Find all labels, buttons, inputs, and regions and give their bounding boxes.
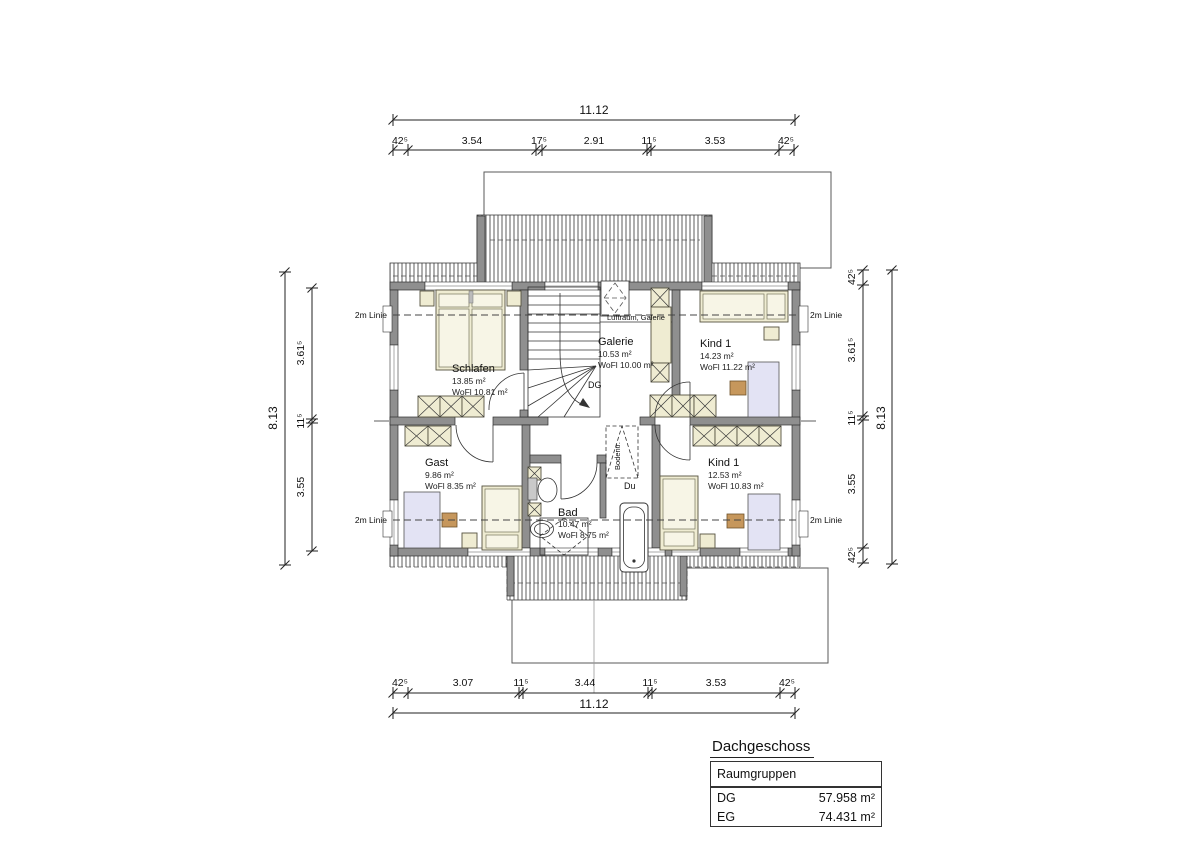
dim-top-seg: 17⁵ bbox=[531, 135, 547, 147]
nightstand bbox=[507, 291, 521, 306]
nightstand bbox=[420, 291, 434, 306]
floor-plan-drawing: 11.12 42⁵ 3.54 17⁵ 2.91 11⁵ 3.53 42⁵ 42⁵… bbox=[0, 0, 1200, 849]
dim-left-seg: 11⁵ bbox=[295, 413, 307, 428]
floor-plan-sheet: 11.12 42⁵ 3.54 17⁵ 2.91 11⁵ 3.53 42⁵ 42⁵… bbox=[0, 0, 1200, 849]
dim-bottom-seg: 42⁵ bbox=[779, 677, 795, 689]
dim-top-seg: 2.91 bbox=[584, 135, 605, 147]
chair bbox=[727, 514, 744, 528]
dim-top-total: 11.12 bbox=[579, 103, 608, 117]
dim-right-seg: 42⁵ bbox=[846, 547, 858, 563]
dim-bottom-seg: 3.44 bbox=[575, 677, 596, 689]
room-label-bad: Bad bbox=[558, 507, 578, 519]
pillow bbox=[439, 294, 469, 307]
2m-linie-label: 2m Linie bbox=[355, 310, 387, 320]
room-wofl: WoFl 11.22 m² bbox=[700, 362, 755, 372]
dim-right-seg: 3.61⁵ bbox=[846, 338, 858, 363]
dg-label: DG bbox=[588, 380, 602, 390]
dim-top-seg: 3.53 bbox=[705, 135, 726, 147]
room-wofl: WoFl 10.81 m² bbox=[452, 387, 508, 397]
nightstand bbox=[764, 327, 779, 340]
room-wofl: WoFl 8.75 m² bbox=[558, 530, 609, 540]
2m-linie-label: 2m Linie bbox=[355, 515, 387, 525]
table-header-raumgruppen: Raumgruppen bbox=[711, 762, 882, 788]
room-area: 10.53 m² bbox=[598, 349, 632, 359]
room-area: 13.85 m² bbox=[452, 376, 486, 386]
dim-bottom-seg: 11⁵ bbox=[513, 677, 528, 689]
dim-bottom-seg: 3.53 bbox=[706, 677, 727, 689]
dim-bottom-total: 11.12 bbox=[579, 697, 608, 711]
wc-tank bbox=[528, 478, 537, 500]
nightstand bbox=[700, 534, 715, 548]
dim-right-seg: 11⁵ bbox=[846, 410, 858, 425]
dim-left-total: 8.13 bbox=[266, 406, 280, 430]
dim-bottom-seg: 11⁵ bbox=[642, 677, 657, 689]
table-row-dg: DG 57.958 m² bbox=[711, 787, 882, 807]
room-label-schlafen: Schlafen bbox=[452, 363, 495, 375]
room-area: 14.23 m² bbox=[700, 351, 734, 361]
staircase bbox=[528, 287, 600, 417]
bodentreppe-label: Bodentr. bbox=[613, 442, 622, 470]
pillow bbox=[486, 535, 518, 548]
roof-window bbox=[601, 281, 629, 316]
stair-arrow bbox=[579, 398, 590, 408]
stair-walk-line bbox=[560, 293, 586, 406]
room-wofl: WoFl 10.83 m² bbox=[708, 481, 764, 491]
dim-right-total: 8.13 bbox=[874, 406, 888, 430]
row-value: 74.431 m² bbox=[764, 807, 882, 827]
dim-bottom-seg: 42⁵ bbox=[392, 677, 408, 689]
desk bbox=[748, 494, 780, 550]
luftraum-label: Luftraum, Galerie bbox=[607, 313, 665, 322]
row-value: 57.958 m² bbox=[764, 787, 882, 807]
tub-drain bbox=[632, 559, 635, 562]
room-label-gast: Gast bbox=[425, 457, 448, 469]
room-groups-table: Raumgruppen DG 57.958 m² EG 74.431 m² bbox=[710, 761, 882, 827]
nightstand bbox=[462, 533, 477, 548]
dim-left-seg: 3.55 bbox=[295, 477, 307, 498]
room-wofl: WoFl 10.00 m² bbox=[598, 360, 654, 370]
attic-ladder bbox=[606, 426, 638, 478]
dim-right-seg: 3.55 bbox=[846, 474, 858, 495]
room-area: 9.86 m² bbox=[425, 470, 454, 480]
row-label: EG bbox=[711, 807, 764, 827]
dim-bottom-seg: 3.07 bbox=[453, 677, 474, 689]
2m-linie-label: 2m Linie bbox=[810, 515, 842, 525]
du-label: Du bbox=[624, 481, 636, 491]
pillow bbox=[664, 532, 694, 546]
room-label-kind1-bottom: Kind 1 bbox=[708, 457, 739, 469]
door-arc-bad bbox=[561, 463, 597, 499]
room-label-galerie: Galerie bbox=[598, 336, 633, 348]
row-label: DG bbox=[711, 787, 764, 807]
dim-top-seg: 42⁵ bbox=[392, 135, 408, 147]
dim-top-seg: 3.54 bbox=[462, 135, 483, 147]
room-label-kind1-top: Kind 1 bbox=[700, 338, 731, 350]
title-block-title: Dachgeschoss bbox=[710, 738, 814, 758]
schlafen-furniture bbox=[418, 290, 521, 417]
chair bbox=[730, 381, 746, 395]
pillow bbox=[472, 294, 502, 307]
room-area: 12.53 m² bbox=[708, 470, 742, 480]
room-wofl: WoFl 8.35 m² bbox=[425, 481, 476, 491]
2m-linie-label: 2m Linie bbox=[810, 310, 842, 320]
dim-top-seg: 42⁵ bbox=[778, 135, 794, 147]
toilet bbox=[538, 478, 557, 502]
dim-left-seg: 3.61⁵ bbox=[295, 341, 307, 366]
dim-top-seg: 11⁵ bbox=[641, 135, 656, 147]
door-arc-gast bbox=[456, 425, 493, 462]
table-row-eg: EG 74.431 m² bbox=[711, 807, 882, 827]
title-block: Dachgeschoss Raumgruppen DG 57.958 m² EG… bbox=[710, 738, 886, 827]
dim-right-seg: 42⁵ bbox=[846, 269, 858, 285]
room-area: 10.47 m² bbox=[558, 519, 592, 529]
